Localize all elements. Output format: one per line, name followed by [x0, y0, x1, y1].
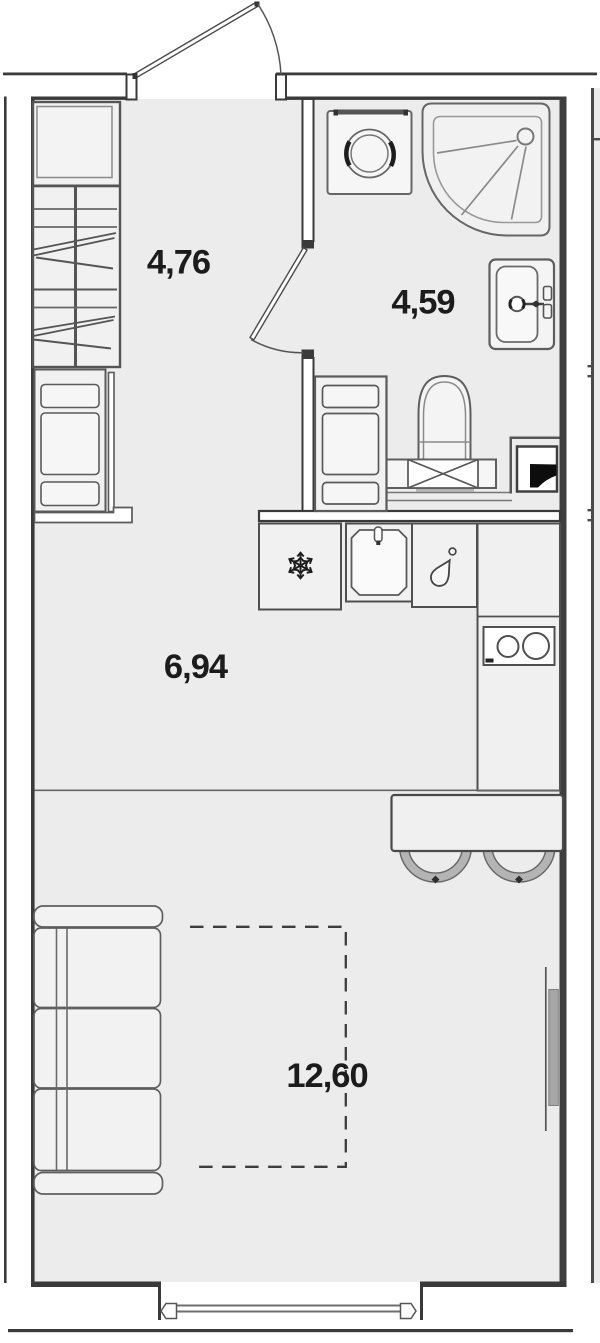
- svg-text:12,60: 12,60: [286, 1057, 367, 1095]
- svg-text:6,94: 6,94: [164, 648, 228, 686]
- svg-text:4,59: 4,59: [391, 284, 454, 322]
- svg-text:4,76: 4,76: [147, 244, 210, 282]
